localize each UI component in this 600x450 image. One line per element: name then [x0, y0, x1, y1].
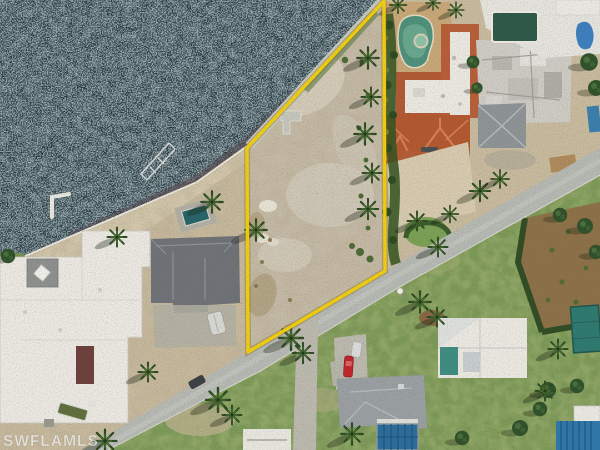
aerial-photo: SWFLAMLS [0, 0, 600, 450]
watermark-text: SWFLAMLS [3, 433, 99, 450]
aerial-photo-svg: SWFLAMLS [0, 0, 600, 450]
photo-grain [0, 0, 600, 450]
